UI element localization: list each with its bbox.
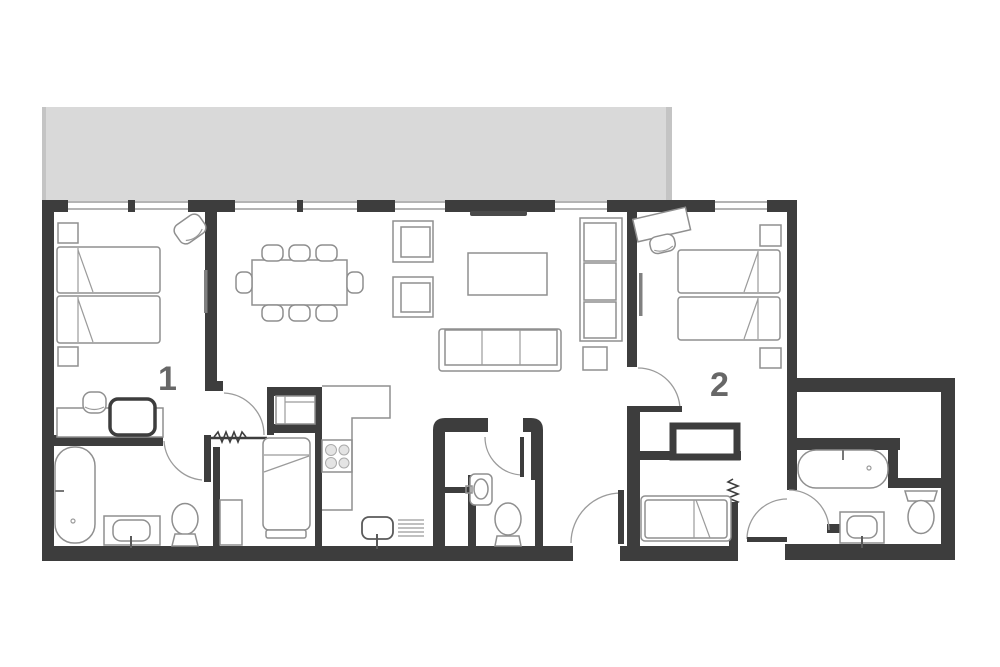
- twin-bed: [678, 250, 780, 293]
- vanity-sink: [104, 516, 160, 548]
- shelf-unit: [580, 218, 622, 341]
- kitchen: [322, 386, 424, 549]
- stool: [83, 392, 106, 413]
- armchair: [393, 221, 433, 262]
- nightstand: [760, 348, 781, 368]
- window: [715, 201, 767, 211]
- bedroom2-door: [638, 368, 682, 412]
- bathroom2-hall-door: [747, 499, 787, 542]
- kitchen-sink: [362, 517, 393, 549]
- bedroom1: 1: [57, 211, 209, 437]
- wc-door: [485, 437, 524, 477]
- twin-bed: [57, 247, 160, 293]
- toilet: [495, 503, 521, 546]
- bottom-wall-middle: [620, 546, 738, 561]
- hall-cabinet: [220, 500, 242, 545]
- bottom-wall-left: [42, 546, 573, 561]
- single-bed: [641, 496, 731, 541]
- floor-plan-drawing: 1: [0, 0, 1000, 667]
- twin-bed: [57, 296, 160, 343]
- bedroom1-label: 1: [158, 360, 177, 398]
- chair: [171, 211, 208, 246]
- bedroom2: 2: [633, 207, 781, 541]
- drying-rack: [398, 520, 424, 536]
- toilet: [172, 504, 198, 547]
- floor-plan-canvas: 1: [0, 0, 1000, 667]
- left-exterior-wall: [42, 200, 54, 561]
- tub-niche-wall: [793, 438, 900, 450]
- extension-bottom-wall: [785, 544, 955, 560]
- bedroom2-label: 2: [710, 366, 729, 404]
- dining-table: [252, 260, 347, 305]
- ottoman: [110, 399, 155, 435]
- window: [395, 201, 445, 211]
- single-bed: [263, 438, 310, 538]
- bathroom1-door: [164, 435, 211, 482]
- sliding-door-slab: [639, 273, 643, 316]
- twin-bed: [678, 297, 780, 340]
- bathtub: [55, 447, 95, 543]
- window: [68, 201, 128, 211]
- wardrobe: [276, 396, 315, 424]
- coffee-table: [468, 253, 547, 295]
- nightstand: [58, 347, 78, 366]
- entrance-door: [571, 490, 624, 544]
- nightstand: [760, 225, 781, 246]
- closet: [673, 426, 737, 457]
- living-dining: [236, 211, 622, 371]
- window: [135, 201, 188, 211]
- bathroom2: [798, 450, 937, 548]
- balcony: [42, 107, 672, 201]
- window: [555, 201, 607, 211]
- bathtub: [798, 450, 888, 488]
- sofa: [439, 329, 561, 371]
- living-hall-door: [224, 393, 264, 435]
- sliding-door-slab: [204, 270, 208, 313]
- side-table: [583, 347, 607, 370]
- armchair: [393, 277, 433, 317]
- tv: [470, 211, 527, 216]
- vanity-sink: [840, 512, 884, 548]
- toilet: [905, 491, 937, 534]
- nightstand: [58, 223, 78, 243]
- stove: [322, 440, 352, 472]
- bathroom2-door: [789, 490, 829, 530]
- window: [303, 201, 357, 211]
- extension-right-wall: [941, 378, 955, 560]
- wall-sink: [466, 474, 492, 505]
- window: [235, 201, 297, 211]
- extension-top-wall: [787, 378, 955, 392]
